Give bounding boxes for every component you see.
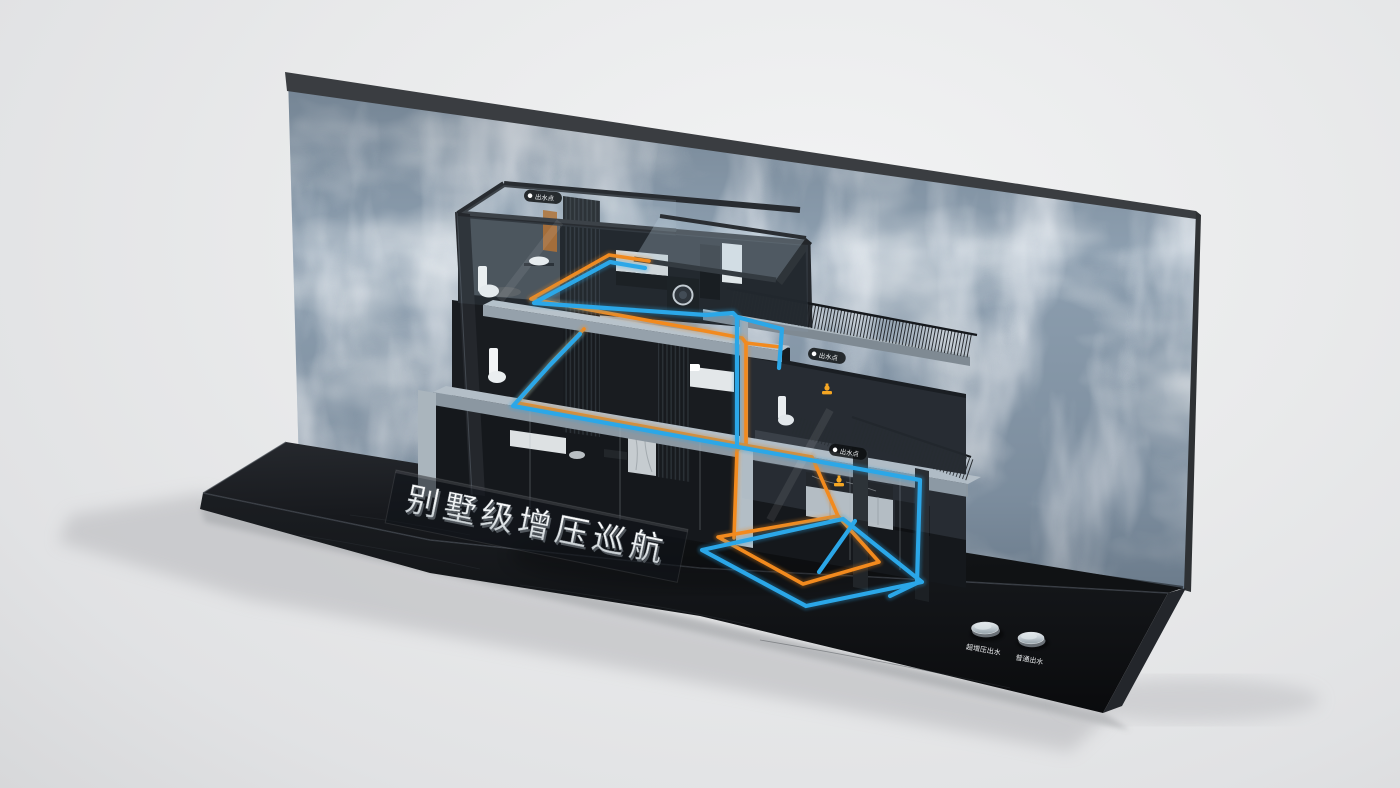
- coffee-table: [569, 451, 585, 459]
- louver-wall: [658, 332, 690, 482]
- button-highlight: [975, 623, 992, 629]
- button-highlight: [1021, 634, 1037, 640]
- render-canvas: 出水点 出水点 出水点: [0, 0, 1400, 788]
- studio-scene: 出水点 出水点 出水点: [0, 0, 1400, 788]
